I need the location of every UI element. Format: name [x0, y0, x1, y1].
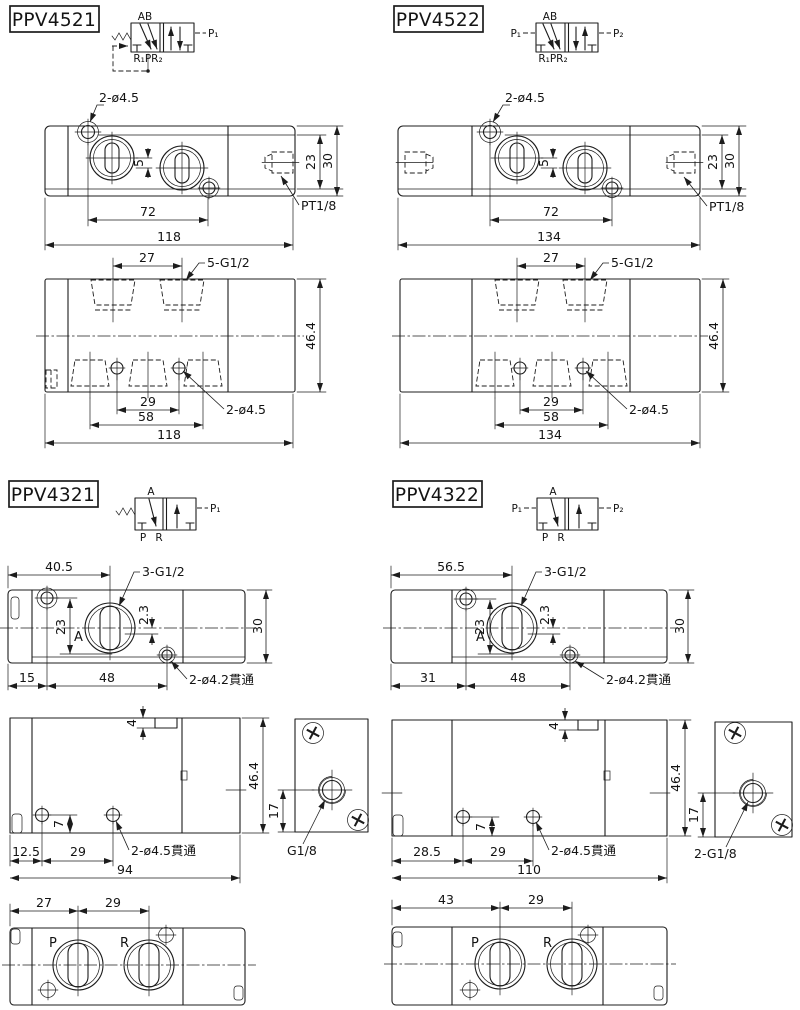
ppv4321-side-view: 4 7 12.5 29 94 2-ø4.5貫通 [10, 706, 269, 883]
ppv4521-top-view: 2-ø4.5 5 23 30 72 118 PT1/8 [45, 90, 343, 250]
dim-31: 31 [391, 608, 466, 690]
dim-30: 30 [669, 590, 694, 663]
port-label-r: R [543, 936, 552, 951]
dim-40-5: 40.5 [8, 559, 110, 588]
svg-text:12.5: 12.5 [12, 844, 40, 859]
model-name: PPV4521 [12, 10, 96, 31]
ppv4322-model-label: PPV4322 [393, 481, 482, 507]
corner-tab [11, 929, 20, 944]
symbol-port-top: A [147, 486, 155, 498]
valve-station-port [156, 142, 208, 194]
valve-body-outline [391, 590, 667, 663]
dim-27: 27 [10, 895, 78, 926]
symbol-pilot-left: P₁ [511, 503, 522, 515]
port-label-a: A [74, 630, 83, 645]
svg-text:118: 118 [157, 427, 181, 442]
dim-29: 29 [520, 374, 583, 414]
main-port [85, 566, 135, 660]
drawing-sheet: PPV4521 AB R₁PR₂ P₁ [0, 0, 800, 1010]
spring-return-icon [116, 508, 135, 515]
ppv4522-side-view: 27 5-G1/2 46.4 29 58 134 2-ø4.5 [392, 250, 729, 448]
small-hole [38, 980, 58, 1000]
svg-text:29: 29 [543, 394, 559, 409]
model-name: PPV4321 [11, 485, 95, 506]
svg-text:30: 30 [672, 618, 687, 634]
valve-drawing-svg: PPV4521 AB R₁PR₂ P₁ [0, 0, 800, 1010]
svg-text:29: 29 [70, 844, 86, 859]
dim-12-5: 12.5 [10, 822, 42, 866]
hole-callout: 2-ø4.5 [629, 402, 669, 417]
side-port-tab [12, 814, 22, 833]
pilot-thread-port [396, 152, 433, 173]
dim-5: 5 [536, 148, 557, 178]
ppv4521-section: PPV4521 AB R₁PR₂ P₁ [10, 6, 343, 448]
svg-text:30: 30 [320, 153, 335, 169]
spring-return-icon [112, 33, 131, 40]
svg-text:46.4: 46.4 [668, 764, 683, 792]
phillips-screw-icon [348, 810, 369, 831]
dim-15: 15 [8, 608, 47, 690]
ppv4521-side-view: 27 5-G1/2 46.4 29 58 118 2-ø4.5 [36, 250, 326, 448]
ppv4322-section: PPV4322 A P R P₁ P₂ A [382, 481, 793, 1005]
symbol-port-top: A [549, 486, 557, 498]
dim-17: 17 [686, 793, 735, 837]
svg-text:17: 17 [686, 807, 701, 823]
hole-callout: 2-ø4.2貫通 [606, 672, 671, 687]
port-callout: 2-G1/8 [694, 846, 737, 861]
ppv4321-section: PPV4321 A P R P₁ A [0, 481, 369, 1005]
port-r [124, 906, 174, 996]
bottom-thread-port [476, 352, 514, 398]
svg-text:30: 30 [250, 618, 265, 634]
phillips-screw-icon [303, 723, 324, 744]
valve-body-outline [400, 279, 700, 392]
svg-text:27: 27 [543, 250, 559, 265]
svg-text:23: 23 [53, 619, 68, 635]
dim-17: 17 [266, 790, 314, 832]
valve-station-port [86, 132, 138, 184]
side-port-detail [46, 370, 57, 388]
ppv4522-valve-symbol: AB R₁PR₂ P₁ P₂ [510, 11, 623, 65]
dim-30: 30 [247, 590, 272, 663]
svg-text:4: 4 [546, 722, 561, 730]
top-thread-port [495, 258, 539, 322]
end-body-outline [295, 719, 368, 832]
svg-text:29: 29 [490, 844, 506, 859]
dim-23: 23 [49, 598, 112, 654]
hole-callout: 2-ø4.5 [99, 90, 139, 105]
ppv4521-model-label: PPV4521 [10, 6, 99, 32]
ppv4522-model-label: PPV4522 [394, 6, 483, 32]
svg-text:23: 23 [303, 154, 318, 170]
svg-text:4: 4 [124, 719, 139, 727]
svg-text:134: 134 [537, 229, 561, 244]
mounting-hole [477, 119, 503, 145]
valve-body-outline [45, 279, 295, 392]
symbol-ports-bottom: R₁PR₂ [538, 53, 567, 65]
dim-118: 118 [45, 198, 293, 250]
svg-text:46.4: 46.4 [246, 762, 261, 790]
port-p [53, 906, 103, 996]
svg-text:31: 31 [420, 670, 436, 685]
dim-27: 27 [517, 250, 585, 266]
dim-7: 7 [48, 815, 77, 833]
svg-text:43: 43 [438, 892, 454, 907]
ppv4322-valve-symbol: A P R P₁ P₂ [511, 486, 623, 544]
svg-text:30: 30 [722, 153, 737, 169]
valve-body-outline [10, 718, 240, 833]
ppv4322-bottom-view: P R 43 29 [384, 892, 676, 1005]
port-callout: 3-G1/2 [544, 564, 587, 579]
top-notch [155, 718, 177, 728]
svg-text:2.3: 2.3 [537, 605, 552, 625]
phillips-screw-icon [725, 723, 746, 744]
side-port-tab [393, 815, 403, 836]
top-notch [578, 720, 598, 730]
valve-body-outline [8, 590, 245, 663]
dim-4: 4 [546, 708, 581, 742]
symbol-pilot-right: P₁ [210, 503, 221, 515]
top-thread-port [563, 258, 607, 322]
port-r [547, 902, 597, 995]
dim-29: 29 [500, 892, 572, 908]
small-hole [578, 925, 598, 945]
ppv4321-top-view: A 40.5 3-G1/2 23 2.3 30 [0, 559, 272, 690]
valve-station-port [491, 132, 543, 184]
dim-2-3: 2.3 [528, 605, 560, 645]
symbol-port-r: R [155, 532, 162, 544]
hole-callout: 2-ø4.2貫通 [189, 672, 254, 687]
dim-7: 7 [469, 817, 499, 836]
svg-text:58: 58 [543, 409, 559, 424]
svg-text:29: 29 [140, 394, 156, 409]
svg-text:72: 72 [140, 204, 156, 219]
top-thread-port [160, 258, 204, 322]
port-label-p: P [49, 936, 57, 951]
svg-text:29: 29 [528, 892, 544, 907]
valve-body-outline [392, 720, 667, 836]
dim-5: 5 [131, 148, 152, 178]
hole-callout: 2-ø4.5 [226, 402, 266, 417]
svg-text:58: 58 [138, 409, 154, 424]
svg-text:15: 15 [19, 670, 35, 685]
svg-text:5: 5 [131, 159, 146, 167]
ppv4522-top-view: 2-ø4.5 5 23 30 72 134 PT1/8 [396, 90, 746, 250]
port-label-p: P [471, 936, 479, 951]
svg-text:7: 7 [473, 823, 488, 831]
dim-56-5: 56.5 [391, 559, 512, 588]
port-callout: PT1/8 [301, 198, 336, 213]
svg-text:2.3: 2.3 [136, 605, 151, 625]
phillips-screw-icon [772, 815, 793, 836]
dim-94: 94 [10, 835, 240, 883]
bottom-thread-port [533, 352, 571, 398]
svg-text:40.5: 40.5 [45, 559, 73, 574]
hole-callout: 2-ø4.5貫通 [131, 843, 196, 858]
symbol-pilot-right: P₂ [613, 503, 624, 515]
svg-text:5: 5 [536, 159, 551, 167]
end-port [312, 770, 352, 810]
port-callout: G1/8 [287, 843, 317, 858]
dim-43: 43 [392, 892, 500, 925]
ppv4322-side-view: 4 7 28.5 29 110 2-ø4.5貫通 [382, 708, 691, 883]
svg-text:56.5: 56.5 [437, 559, 465, 574]
svg-text:28.5: 28.5 [413, 844, 441, 859]
dim-46-4: 46.4 [297, 279, 326, 392]
dim-48: 48 [47, 666, 167, 690]
valve-body-outline [45, 126, 295, 196]
svg-text:23: 23 [472, 619, 487, 635]
svg-text:94: 94 [117, 862, 133, 877]
symbol-port-p: P [542, 532, 548, 544]
ppv4521-valve-symbol: AB R₁PR₂ P₁ [112, 11, 219, 73]
hole-callout: 2-ø4.5 [505, 90, 545, 105]
svg-text:17: 17 [266, 803, 281, 819]
ppv4321-model-label: PPV4321 [9, 481, 98, 507]
dim-2-3: 2.3 [125, 605, 158, 645]
model-name: PPV4322 [395, 485, 479, 506]
through-hole [104, 806, 122, 824]
top-thread-port [91, 258, 135, 322]
symbol-port-p: P [140, 532, 146, 544]
dim-48: 48 [466, 666, 570, 690]
corner-tab [654, 986, 663, 1000]
bottom-thread-port [184, 352, 222, 398]
corner-tab [393, 932, 402, 947]
blocked-port-symbols [133, 45, 192, 51]
symbol-pilot-right: P₂ [613, 28, 624, 40]
symbol-port-r: R [557, 532, 564, 544]
port-callout: 3-G1/2 [142, 564, 185, 579]
svg-text:27: 27 [36, 895, 52, 910]
ppv4321-valve-symbol: A P R P₁ [116, 486, 221, 544]
blocked-port-symbols [539, 523, 596, 529]
ppv4321-bottom-view: P R 27 29 [2, 895, 256, 1005]
port-callout: 5-G1/2 [611, 255, 654, 270]
svg-text:27: 27 [139, 250, 155, 265]
symbol-ports-bottom: R₁PR₂ [133, 53, 162, 65]
dim-46-4: 46.4 [702, 279, 729, 392]
dim-29: 29 [78, 895, 149, 911]
bottom-thread-port [129, 352, 167, 398]
svg-text:118: 118 [157, 229, 181, 244]
dim-46-4: 46.4 [242, 718, 269, 833]
svg-text:7: 7 [51, 820, 66, 828]
svg-text:48: 48 [510, 670, 526, 685]
model-name: PPV4522 [396, 10, 480, 31]
main-port [487, 566, 537, 660]
through-hole [524, 808, 542, 826]
port-callout: PT1/8 [709, 199, 744, 214]
svg-text:72: 72 [543, 204, 559, 219]
svg-text:134: 134 [538, 427, 562, 442]
svg-text:23: 23 [705, 154, 720, 170]
port-label-r: R [120, 936, 129, 951]
dim-27: 27 [113, 250, 182, 266]
valve-station-port [559, 142, 611, 194]
pilot-thread-port [666, 152, 703, 173]
svg-text:29: 29 [105, 895, 121, 910]
ppv4322-top-view: A 56.5 3-G1/2 23 2.3 30 [383, 559, 694, 690]
ppv4322-end-view: 17 2-G1/8 [686, 722, 793, 861]
port-callout: 5-G1/2 [207, 255, 250, 270]
svg-text:46.4: 46.4 [303, 322, 318, 350]
svg-text:46.4: 46.4 [706, 322, 721, 350]
symbol-ports-top: AB [138, 11, 152, 23]
small-hole [460, 980, 480, 1000]
svg-text:48: 48 [99, 670, 115, 685]
side-port-tab [11, 597, 19, 619]
hole-callout: 2-ø4.5貫通 [551, 843, 616, 858]
symbol-pilot-left: P₁ [510, 28, 521, 40]
bottom-thread-port [71, 352, 109, 398]
blocked-port-symbols [537, 45, 596, 51]
symbol-ports-top: AB [543, 11, 557, 23]
corner-tab [234, 986, 243, 1000]
valve-body-outline [392, 927, 667, 1005]
ppv4321-end-view: 17 G1/8 [266, 719, 369, 858]
port-p [475, 902, 525, 995]
end-port [733, 773, 773, 813]
ppv4522-section: PPV4522 AB R₁PR₂ P₁ P₂ [392, 6, 746, 448]
dim-4: 4 [124, 706, 159, 740]
pilot-thread-port [262, 152, 299, 173]
svg-text:110: 110 [517, 862, 541, 877]
symbol-pilot-right: P₁ [208, 28, 219, 40]
